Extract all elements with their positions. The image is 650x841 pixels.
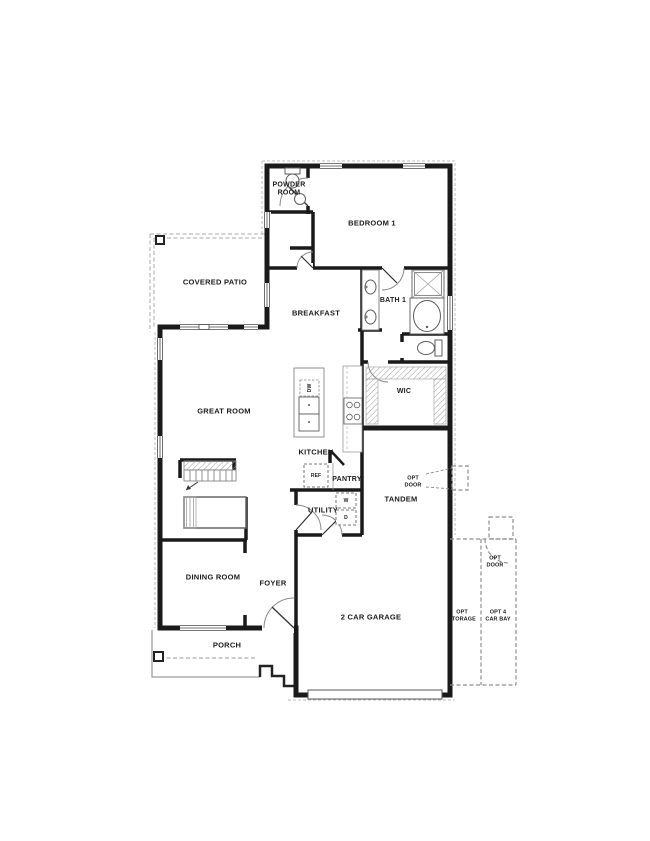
window-greatroom-left-2 — [156, 436, 164, 458]
window-bedroom-top-2 — [403, 162, 425, 170]
room-label-breakfast: BREAKFAST — [292, 309, 340, 318]
label-dishwasher: DW — [307, 384, 313, 392]
bedroom-1-door — [297, 252, 313, 273]
room-label-kitchen: KITCHEN — [298, 448, 333, 457]
porch-outline — [152, 630, 296, 686]
window-bath-tub — [446, 296, 455, 330]
porch-steps — [260, 666, 296, 686]
label-washer: W — [344, 498, 349, 504]
shower — [412, 270, 444, 298]
room-label-great-room: GREAT ROOM — [197, 407, 251, 416]
room-label-foyer: FOYER — [259, 579, 286, 588]
window-patio-wall-1 — [180, 323, 228, 331]
room-label-covered-patio: COVERED PATIO — [183, 278, 247, 287]
label-opt-door-upper: OPT DOOR — [405, 475, 422, 488]
fixtures — [184, 168, 446, 699]
floor-plan-drawing — [0, 0, 650, 841]
window-dining-front — [180, 624, 226, 632]
room-label-bath-1: BATH 1 — [380, 297, 406, 305]
bath-vanity — [362, 270, 379, 330]
floor-plan: POWDER ROOM BEDROOM 1 COVERED PATIO BREA… — [0, 0, 650, 841]
window-bedroom-top-1 — [320, 162, 342, 170]
window-upper-left-1 — [263, 212, 271, 228]
window-greatroom-left-1 — [156, 338, 164, 360]
stairs — [184, 461, 236, 490]
room-label-dining-room: DINING ROOM — [186, 573, 240, 582]
under-stair-closet — [184, 497, 246, 528]
label-refrigerator: REF — [311, 473, 321, 479]
window-patio-wall-2 — [244, 323, 258, 331]
front-door — [262, 598, 294, 633]
bathtub — [410, 298, 444, 334]
label-opt-door-lower: OPT DOOR — [487, 555, 504, 568]
label-dryer: D — [344, 515, 348, 521]
room-label-pantry: PANTRY — [332, 476, 362, 484]
porch-post — [154, 652, 163, 661]
range-stove — [344, 398, 362, 424]
room-label-bedroom-1: BEDROOM 1 — [348, 219, 396, 228]
opt-door-lower-panel — [489, 517, 513, 539]
garage-door — [308, 690, 442, 699]
room-label-utility: UTILITY — [308, 506, 338, 515]
patio-post — [156, 236, 164, 244]
opt-door-upper-panel — [452, 466, 468, 490]
label-opt-storage: OPT STORAGE — [448, 609, 476, 622]
doors — [262, 178, 407, 633]
label-opt-4-car-bay: OPT 4 CAR BAY — [485, 609, 510, 622]
room-label-garage: 2 CAR GARAGE — [341, 613, 402, 622]
room-label-wic: WIC — [397, 388, 411, 396]
window-patio-door — [263, 283, 271, 307]
room-label-porch: PORCH — [213, 641, 241, 650]
kitchen-island — [294, 368, 324, 437]
bath-1-door — [382, 263, 404, 290]
room-label-powder-room: POWDER ROOM — [273, 182, 306, 199]
bath-toilet — [418, 340, 443, 356]
optional-areas — [426, 466, 516, 685]
toilet-room-door — [399, 342, 407, 358]
room-label-tandem: TANDEM — [384, 495, 417, 504]
